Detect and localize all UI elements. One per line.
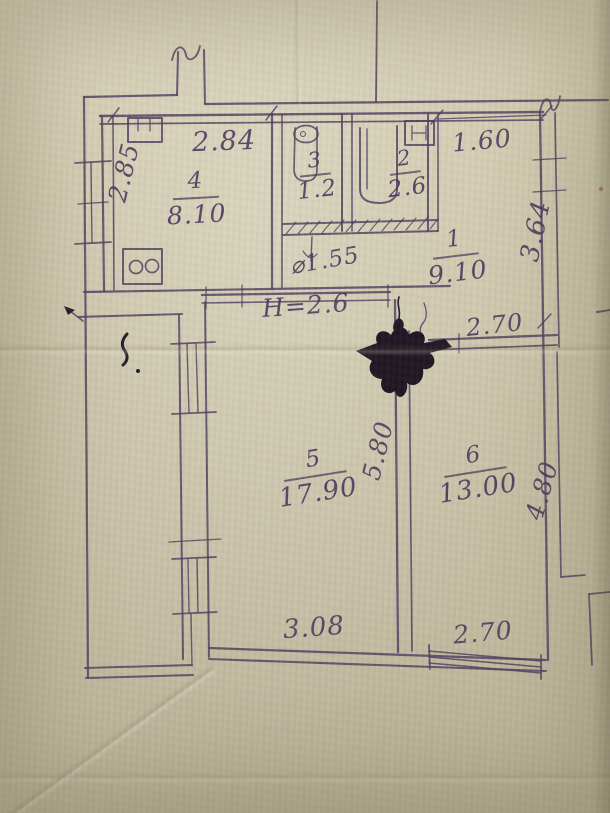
outer-wall-top-left [84,95,177,97]
floor-plan-photo: 2.84 2.85 1.60 3.64 ⌀1.55 H=2.6 2.70 5.8… [0,0,610,813]
room-area: 8.10 [166,200,227,228]
room-4-label: 4 8.10 [165,168,228,228]
ink-blot [356,318,452,396]
balcony-wall-top [78,314,182,317]
room-2-label: 2 2.6 [383,146,429,202]
floorplan-drawing [0,0,610,813]
ink-smudge [122,334,127,365]
outer-wall-right [540,113,548,660]
room-1-label: 1 9.10 [423,225,489,289]
break-squiggle [172,46,200,60]
dim-room5-width-bottom: 3.08 [282,613,346,643]
window-symbol-balcony-2 [172,557,217,614]
dim-room6-width-bottom: 2.70 [452,617,514,647]
room-number: 1 [429,225,479,259]
vent-shaft [177,52,178,95]
dim-hall-width-top: 1.60 [451,125,513,155]
room-6-label: 6 13.00 [432,438,520,508]
outer-wall-left [84,97,88,677]
room-number: 2 [387,146,421,176]
dimension-line [437,115,546,119]
balcony-wall-bottom [85,665,192,668]
wall-stub-top [376,1,377,102]
paper-edge-shadow [592,0,610,813]
stove-icon [123,249,162,284]
outer-wall-bottom [209,648,546,660]
vent-box [128,118,162,142]
break-squiggle [540,96,560,112]
room-area: 2.6 [387,175,429,203]
dim-room4-width-top: 2.84 [192,127,257,156]
ink-drip [398,297,399,322]
window-symbol-left [75,161,111,244]
room-area: 9.10 [427,256,489,288]
room-area: 1.2 [296,177,338,204]
room-number: 4 [171,169,219,200]
room-5-label: 5 17.90 [272,442,360,512]
window-symbol-balcony-1 [171,342,216,414]
window-symbol-bottom [429,645,541,679]
dim-room6-width-top: 2.70 [465,310,525,340]
sink-icon [405,121,434,145]
ink-dot [136,369,140,373]
room-number: 3 [297,149,331,178]
vent-shaft [204,50,205,104]
room-3-label: 3 1.2 [293,148,338,204]
ceiling-height-note: H=2.6 [261,290,350,321]
outer-wall-top [205,100,608,104]
